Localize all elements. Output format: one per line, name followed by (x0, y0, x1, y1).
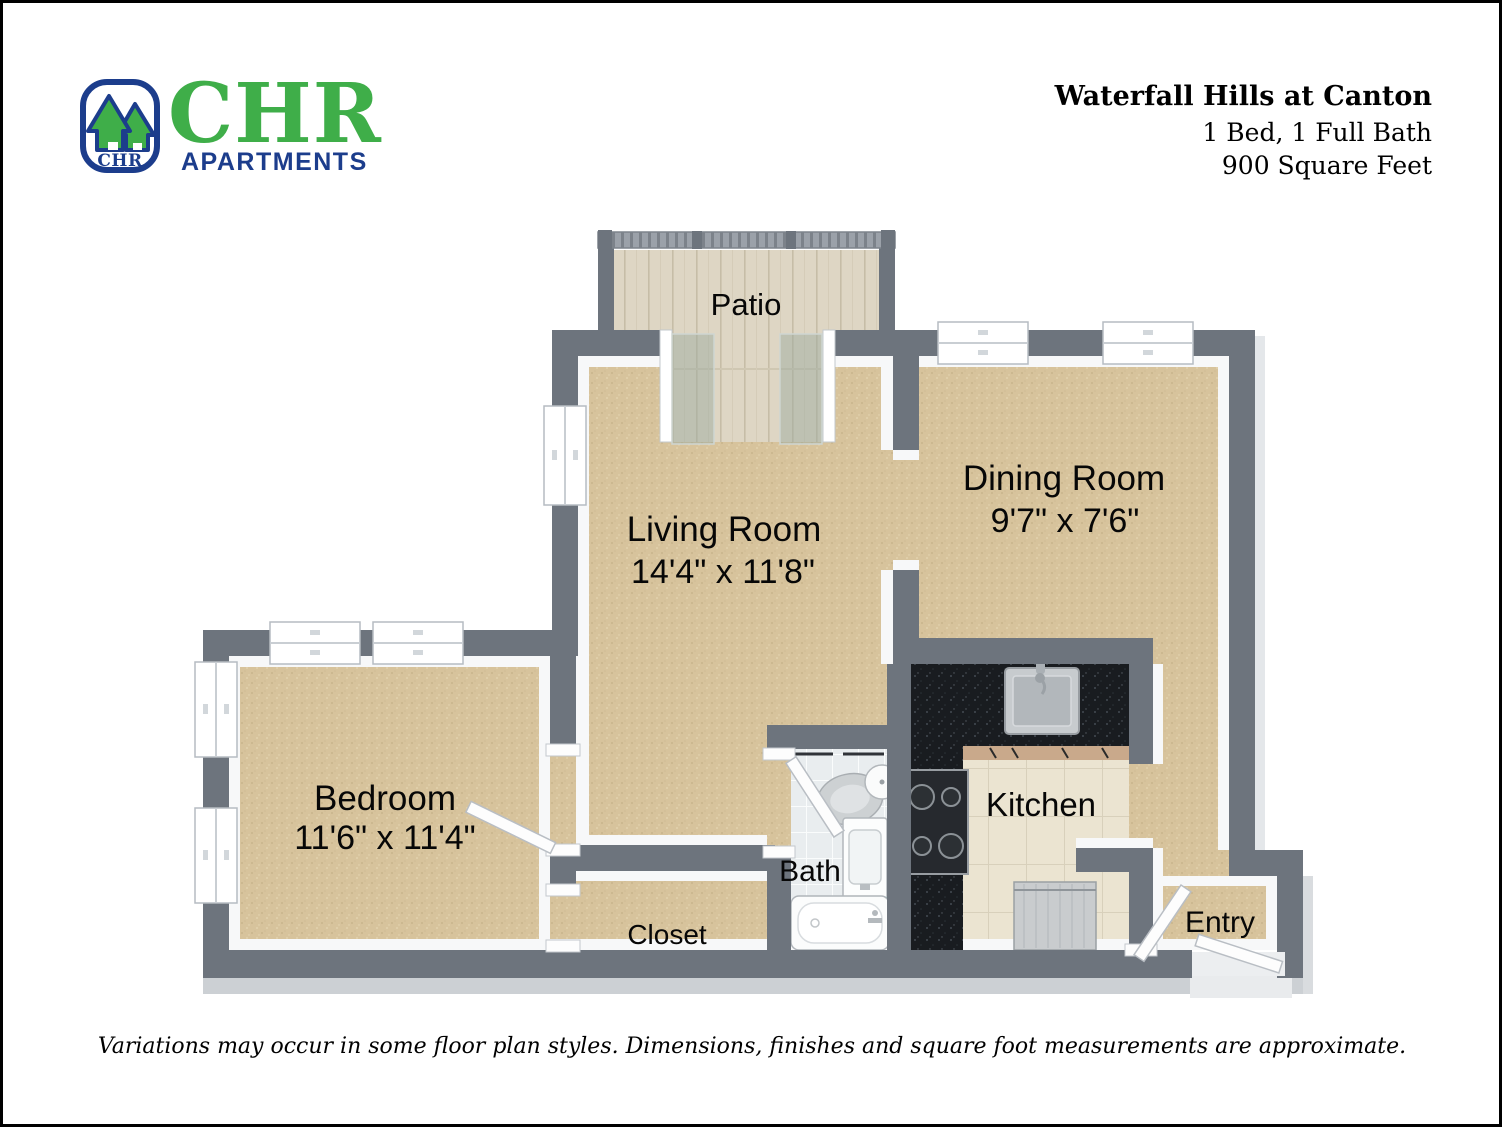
entry-step (1190, 976, 1292, 998)
bathtub (791, 896, 889, 950)
glass-panel-left (672, 334, 714, 444)
floor-plan-page: Patio Living Room 14'4" x 11'8" Dining R… (0, 0, 1502, 1127)
cooktop (906, 770, 968, 874)
chr-logo: CHR (83, 82, 157, 171)
dishwasher (1014, 882, 1096, 950)
kitchen-sink (1005, 658, 1079, 734)
glass-panel-right (780, 334, 822, 444)
bedroom-window-left-1 (195, 662, 237, 757)
dining-window-1 (938, 322, 1028, 364)
living-window-left (544, 406, 586, 505)
bedroom-window-top-1 (270, 622, 360, 664)
kitchen-cabinet-strip (963, 746, 1129, 760)
patio-floor (614, 250, 881, 330)
bedroom-window-left-2 (195, 808, 237, 903)
patio-railing (598, 230, 895, 250)
logo-door-notch-right (133, 143, 142, 150)
dining-window-2 (1103, 322, 1193, 364)
bedroom-window-top-2 (373, 622, 463, 664)
logo-door-notch-left (108, 142, 118, 150)
vanity-sink (843, 818, 889, 908)
